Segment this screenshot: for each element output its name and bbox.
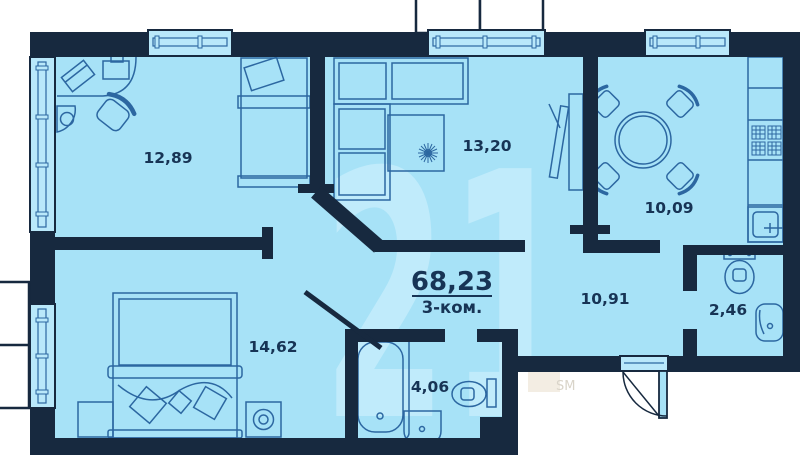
balcony-left-upper-section	[0, 282, 29, 346]
area-label-bedroom: 14,62	[248, 338, 297, 356]
floorplan-svg: 21	[0, 0, 800, 455]
area-label-kitchen: 10,09	[644, 199, 693, 217]
window-living-balcony	[428, 30, 545, 56]
window-bedroom-left	[30, 304, 55, 408]
window-kitchen-top	[645, 30, 730, 56]
area-label-bathroom: 4,06	[411, 378, 449, 396]
balcony-left-lower-section	[0, 345, 29, 408]
area-label-hallway: 10,91	[580, 290, 629, 308]
door-leaf	[659, 371, 667, 418]
entrance-door	[620, 356, 668, 418]
area-label-living: 13,20	[462, 137, 511, 155]
balcony-top-right-section	[480, 0, 543, 33]
floorplan: 21	[0, 0, 800, 455]
window-study-top	[148, 30, 232, 56]
area-label-study: 12,89	[143, 149, 192, 167]
balcony-top-left-section	[416, 0, 480, 33]
rooms-count-label: 3-ком.	[422, 298, 483, 317]
plant-icon	[418, 143, 438, 163]
area-label-wc: 2,46	[709, 301, 747, 319]
watermark-sm: SM	[556, 379, 575, 394]
total-area-label: 68,23	[411, 267, 493, 297]
window-study-left	[30, 57, 55, 232]
